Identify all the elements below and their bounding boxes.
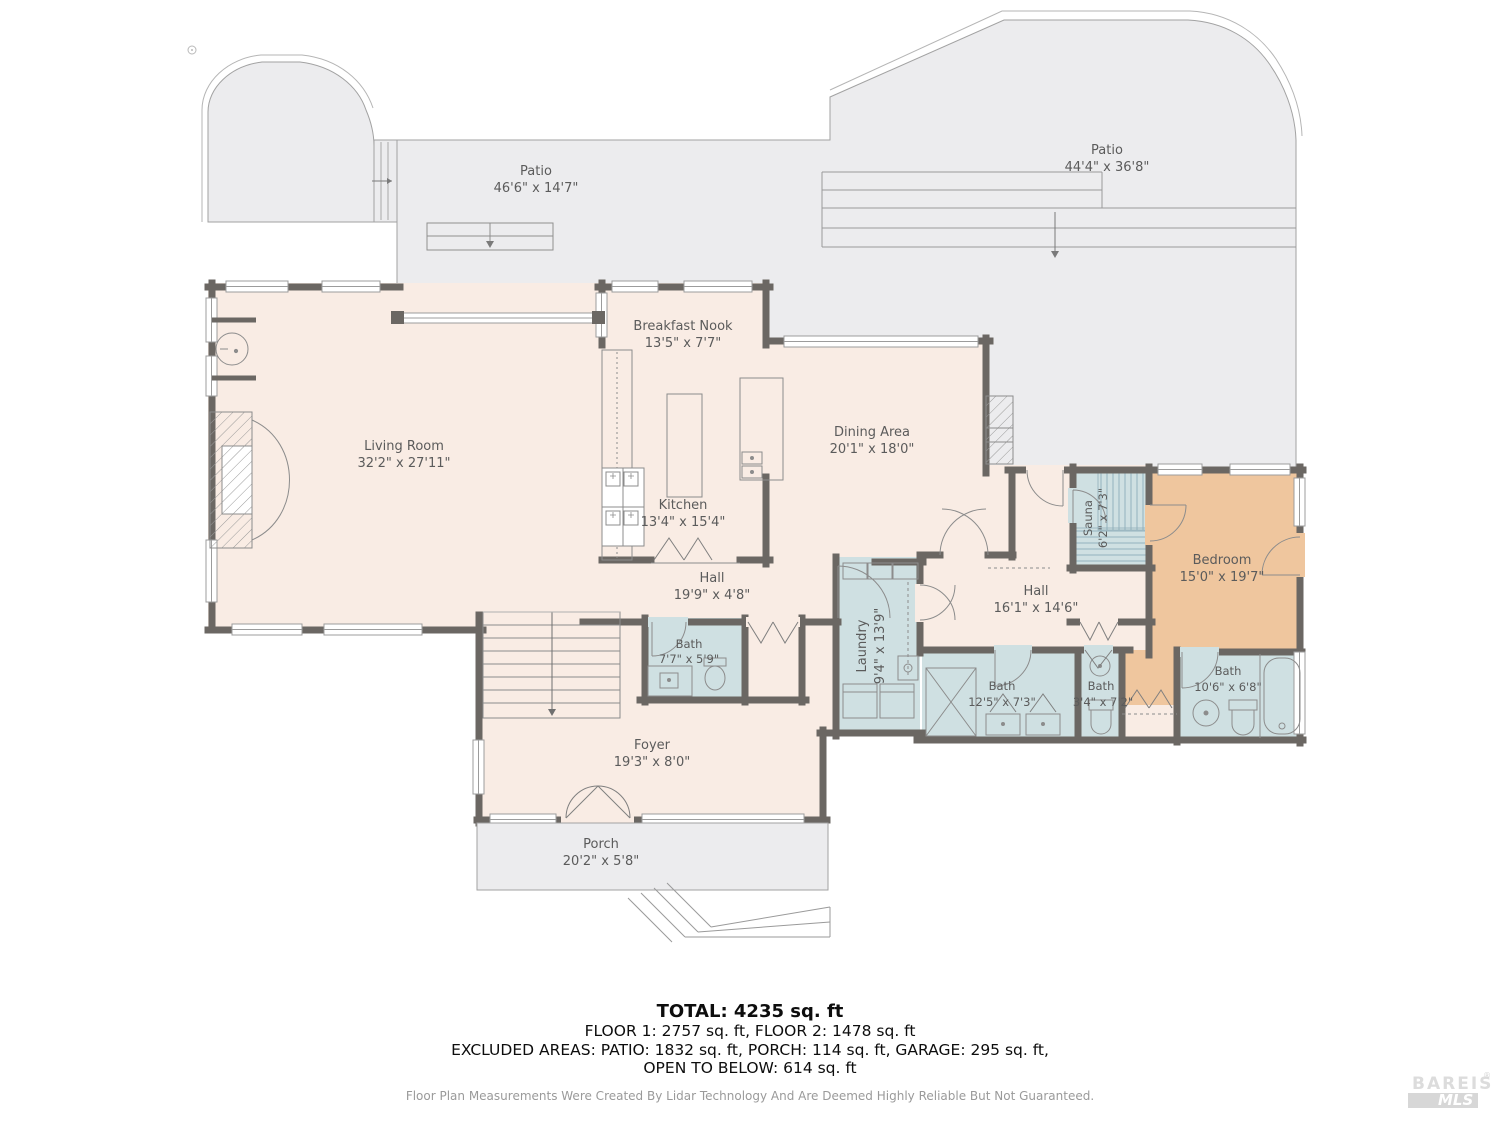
label-bedroom-name: Bedroom [1193, 553, 1252, 568]
label-hall-large-name: Hall [1024, 584, 1049, 599]
floor-plan-page: { "rooms": { "patio_left": {"name": "Pat… [0, 0, 1500, 1125]
logo-sub-text: MLS [1438, 1091, 1473, 1109]
summary-block: TOTAL: 4235 sq. ft FLOOR 1: 2757 sq. ft,… [406, 1001, 1094, 1103]
label-patio-left-dims: 46'6" x 14'7" [494, 181, 579, 196]
porch-steps [628, 883, 830, 942]
label-sauna-name: Sauna [1081, 500, 1095, 536]
label-hall-small-name: Hall [700, 571, 725, 586]
label-bath-powder-name: Bath [1088, 679, 1115, 693]
label-breakfast-nook-name: Breakfast Nook [633, 319, 733, 334]
room-porch [477, 823, 828, 890]
label-dining-area-name: Dining Area [834, 425, 910, 440]
label-laundry-name: Laundry [855, 619, 870, 672]
label-bath-main-dims: 7'7" x 5'9" [659, 652, 719, 666]
label-porch-dims: 20'2" x 5'8" [563, 854, 639, 869]
label-hall-large-dims: 16'1" x 14'6" [994, 601, 1079, 616]
label-bath-ensuite-dims: 10'6" x 6'8" [1194, 680, 1262, 694]
room-bath-shared [922, 650, 1078, 737]
label-porch-name: Porch [583, 837, 619, 852]
label-bath-powder-dims: 3'4" x 7'2" [1073, 695, 1133, 709]
label-dining-area-dims: 20'1" x 18'0" [830, 442, 915, 457]
label-bath-main-name: Bath [676, 637, 703, 651]
compass-icon [188, 46, 196, 54]
label-foyer-dims: 19'3" x 8'0" [614, 755, 690, 770]
label-breakfast-nook-dims: 13'5" x 7'7" [645, 336, 721, 351]
fireplace-dining [986, 396, 1013, 464]
patio-arch [208, 62, 374, 222]
label-laundry-dims: 9'4" x 13'9" [873, 608, 888, 684]
label-bath-shared-name: Bath [989, 679, 1016, 693]
label-sauna-dims: 6'2" x 7'3" [1096, 488, 1110, 548]
label-hall-small-dims: 19'9" x 4'8" [674, 588, 750, 603]
label-bedroom-dims: 15'0" x 19'7" [1180, 570, 1265, 585]
summary-floors: FLOOR 1: 2757 sq. ft, FLOOR 2: 1478 sq. … [585, 1022, 916, 1040]
label-foyer-name: Foyer [634, 738, 671, 753]
logo-registered-icon: ® [1483, 1071, 1491, 1080]
label-bath-ensuite-name: Bath [1215, 664, 1242, 678]
room-bath-powder [1078, 650, 1122, 737]
summary-excluded: EXCLUDED AREAS: PATIO: 1832 sq. ft, PORC… [451, 1041, 1049, 1059]
summary-open-below: OPEN TO BELOW: 614 sq. ft [643, 1059, 856, 1077]
label-kitchen-name: Kitchen [659, 498, 708, 513]
label-patio-right-dims: 44'4" x 36'8" [1065, 160, 1150, 175]
floor-plan-canvas: Patio 46'6" x 14'7" Patio 44'4" x 36'8" … [0, 0, 1500, 1125]
label-kitchen-dims: 13'4" x 15'4" [641, 515, 726, 530]
label-patio-right-name: Patio [1091, 143, 1123, 158]
label-patio-left-name: Patio [520, 164, 552, 179]
bareis-mls-logo: BAREIS ® MLS [1408, 1071, 1493, 1109]
disclaimer-text: Floor Plan Measurements Were Created By … [406, 1089, 1094, 1103]
label-living-room-dims: 32'2" x 27'11" [358, 456, 451, 471]
label-living-room-name: Living Room [364, 439, 444, 454]
summary-total: TOTAL: 4235 sq. ft [657, 1001, 844, 1022]
label-bath-shared-dims: 12'5" x 7'3" [968, 695, 1036, 709]
